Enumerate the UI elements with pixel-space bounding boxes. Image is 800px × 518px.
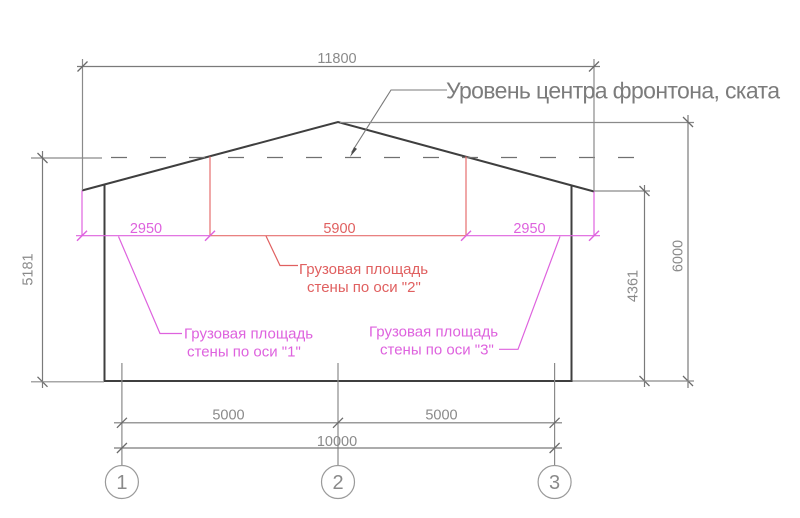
svg-text:6000: 6000 <box>671 240 687 272</box>
svg-text:5900: 5900 <box>323 221 355 237</box>
svg-text:2950: 2950 <box>513 221 545 237</box>
svg-text:стены по оси "1": стены по оси "1" <box>187 344 301 361</box>
svg-text:5000: 5000 <box>425 408 457 424</box>
svg-text:стены по оси "3": стены по оси "3" <box>380 342 494 359</box>
svg-text:2950: 2950 <box>130 221 162 237</box>
svg-text:стены по оси "2": стены по оси "2" <box>307 279 421 296</box>
svg-text:1: 1 <box>116 472 127 494</box>
svg-text:Грузовая площадь: Грузовая площадь <box>299 261 428 278</box>
svg-text:5181: 5181 <box>21 253 37 285</box>
svg-text:3: 3 <box>549 472 560 494</box>
svg-text:Грузовая площадь: Грузовая площадь <box>369 324 498 341</box>
svg-text:Уровень центра фронтона, ската: Уровень центра фронтона, ската <box>446 78 780 104</box>
svg-text:11800: 11800 <box>317 51 356 67</box>
svg-text:5000: 5000 <box>212 408 244 424</box>
svg-text:4361: 4361 <box>626 270 642 302</box>
svg-text:2: 2 <box>332 472 343 494</box>
svg-text:Грузовая площадь: Грузовая площадь <box>184 326 313 343</box>
svg-text:10000: 10000 <box>317 434 357 450</box>
